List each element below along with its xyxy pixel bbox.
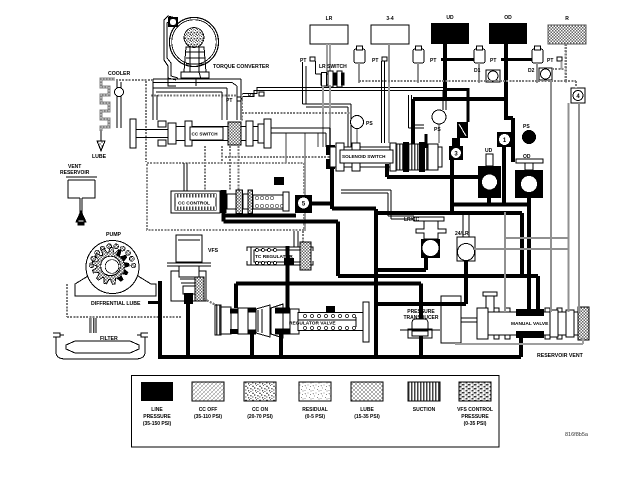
svg-text:SOLENOID SWITCH: SOLENOID SWITCH (342, 154, 386, 159)
svg-text:REGULATOR VALVE: REGULATOR VALVE (289, 321, 336, 327)
svg-text:RESERVOIR: RESERVOIR (60, 170, 90, 176)
svg-text:MANUAL VALVE: MANUAL VALVE (511, 321, 549, 327)
svg-text:CC ON: CC ON (252, 407, 269, 413)
svg-text:(35-150 PSI): (35-150 PSI) (143, 421, 172, 427)
svg-text:RESIDUAL: RESIDUAL (302, 407, 328, 413)
svg-text:SUCTION: SUCTION (413, 407, 436, 413)
svg-text:R: R (565, 16, 569, 22)
svg-text:(35-110 PSI): (35-110 PSI) (194, 414, 222, 420)
svg-text:LUBE: LUBE (92, 154, 107, 160)
svg-text:(15-35 PSI): (15-35 PSI) (354, 414, 380, 420)
svg-text:PT: PT (248, 93, 254, 99)
svg-text:CC OFF: CC OFF (199, 407, 218, 413)
svg-text:3-4: 3-4 (386, 16, 393, 22)
svg-text:LUBE: LUBE (360, 407, 374, 413)
svg-text:PT: PT (430, 58, 436, 64)
svg-text:PRESSURE: PRESSURE (143, 414, 171, 420)
svg-text:TORQUE CONVERTER: TORQUE CONVERTER (213, 64, 269, 70)
svg-text:D2: D2 (528, 68, 535, 74)
svg-text:816f8b5a: 816f8b5a (565, 432, 589, 438)
svg-text:VFS: VFS (208, 248, 219, 254)
svg-text:OD: OD (504, 15, 512, 21)
svg-text:PS: PS (366, 121, 373, 127)
svg-text:UD: UD (485, 148, 493, 154)
svg-text:(20-70 PSI): (20-70 PSI) (247, 414, 273, 420)
svg-text:(0-5 PSI): (0-5 PSI) (305, 414, 325, 420)
svg-text:DIFFRENTIAL LUBE: DIFFRENTIAL LUBE (91, 301, 141, 307)
svg-text:24/LR: 24/LR (455, 231, 469, 237)
svg-text:RESERVOIR VENT: RESERVOIR VENT (537, 353, 584, 359)
svg-text:PT: PT (547, 58, 553, 64)
svg-text:PT: PT (300, 58, 306, 64)
svg-text:COOLER: COOLER (108, 71, 130, 77)
svg-text:CC SWITCH: CC SWITCH (192, 132, 219, 137)
svg-text:PT: PT (490, 58, 496, 64)
svg-text:LR/CC: LR/CC (404, 217, 420, 223)
svg-text:D1: D1 (474, 68, 481, 74)
svg-text:LR: LR (326, 16, 333, 22)
svg-text:VFS CONTROL: VFS CONTROL (457, 407, 493, 413)
svg-text:LINE: LINE (151, 407, 163, 413)
svg-text:PT: PT (372, 58, 378, 64)
svg-text:(0-35 PSI): (0-35 PSI) (464, 421, 487, 427)
svg-text:CC CONTROL: CC CONTROL (178, 201, 210, 207)
svg-text:PRESSURE: PRESSURE (461, 414, 489, 420)
svg-text:PS: PS (434, 127, 441, 133)
svg-text:UD: UD (446, 15, 454, 21)
svg-text:PS: PS (523, 124, 530, 130)
svg-text:LR SWITCH: LR SWITCH (319, 64, 347, 70)
svg-text:PUMP: PUMP (106, 232, 122, 238)
